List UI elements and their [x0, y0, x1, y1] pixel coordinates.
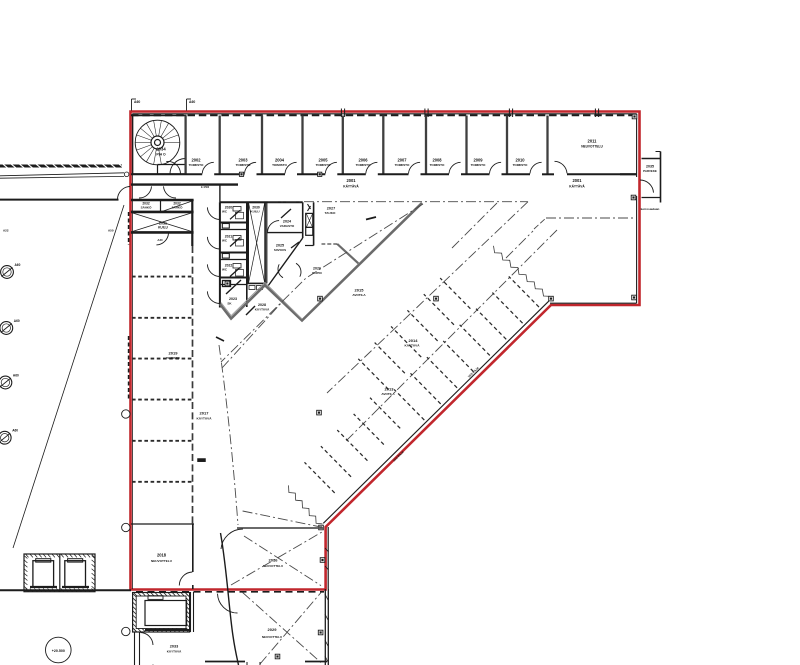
- svg-text:2007: 2007: [397, 157, 407, 162]
- svg-text:2015: 2015: [355, 288, 365, 293]
- svg-text:KÄYTÄVÄ: KÄYTÄVÄ: [569, 185, 585, 189]
- svg-text:2014: 2014: [409, 338, 419, 343]
- svg-text:WC: WC: [222, 238, 228, 242]
- svg-text:TOIMISTO: TOIMISTO: [430, 163, 445, 167]
- svg-text:TOIMISTO: TOIMISTO: [395, 163, 410, 167]
- svg-text:2008: 2008: [432, 157, 442, 162]
- svg-text:2006: 2006: [358, 157, 368, 162]
- svg-text:2011: 2011: [588, 139, 598, 144]
- svg-text:2005: 2005: [318, 157, 328, 162]
- svg-text:TOIMISTO: TOIMISTO: [316, 163, 331, 167]
- svg-text:2009: 2009: [473, 157, 483, 162]
- svg-text:PIH O: PIH O: [156, 153, 166, 157]
- svg-text:KÄYTÄVÄ: KÄYTÄVÄ: [255, 307, 270, 311]
- svg-text:2017: 2017: [200, 410, 210, 415]
- svg-text:KÄYTÄVÄ: KÄYTÄVÄ: [167, 649, 182, 653]
- svg-text:A60: A60: [14, 319, 20, 323]
- svg-text:VARASTO: VARASTO: [280, 224, 295, 228]
- svg-text:2002: 2002: [191, 157, 201, 162]
- svg-text:TAUKO: TAUKO: [325, 211, 336, 215]
- svg-text:2018: 2018: [157, 553, 167, 558]
- svg-text:NEUVOTTELU: NEUVOTTELU: [581, 145, 603, 149]
- svg-text:2024: 2024: [283, 219, 292, 223]
- svg-text:AVOTILA: AVOTILA: [381, 392, 395, 396]
- svg-text:2019: 2019: [169, 350, 179, 355]
- svg-text:KUILU: KUILU: [158, 226, 168, 230]
- svg-text:2003: 2003: [238, 157, 248, 162]
- svg-text:NEUVOTTELU: NEUVOTTELU: [151, 559, 173, 563]
- svg-text:2010: 2010: [515, 157, 525, 162]
- svg-text:2004: 2004: [275, 157, 285, 162]
- svg-text:2001: 2001: [572, 178, 582, 183]
- svg-text:KÄYTÄVÄ: KÄYTÄVÄ: [197, 417, 213, 421]
- svg-text:KÄYTÄVÄ: KÄYTÄVÄ: [343, 185, 359, 189]
- svg-text:A60: A60: [12, 429, 18, 433]
- svg-text:TOIMISTO: TOIMISTO: [356, 163, 371, 167]
- svg-text:A60: A60: [15, 263, 21, 267]
- svg-text:b=1500: b=1500: [201, 186, 210, 189]
- svg-text:kerrosaulaan: kerrosaulaan: [641, 207, 660, 211]
- svg-text:NEUVOTTELU: NEUVOTTELU: [262, 635, 282, 639]
- svg-text:+20.500: +20.500: [52, 649, 65, 653]
- svg-text:SÄHKÖ: SÄHKÖ: [141, 205, 153, 210]
- svg-text:A30: A30: [157, 238, 163, 242]
- svg-text:AVOTILA: AVOTILA: [352, 293, 366, 297]
- svg-text:A60: A60: [189, 100, 195, 104]
- svg-text:2026: 2026: [313, 267, 321, 271]
- svg-text:WC: WC: [222, 209, 228, 213]
- svg-text:2023: 2023: [229, 297, 237, 301]
- svg-text:A22: A22: [3, 229, 9, 233]
- svg-text:A60: A60: [13, 374, 19, 378]
- svg-text:2027: 2027: [327, 206, 335, 210]
- svg-text:WC: WC: [222, 267, 228, 271]
- svg-text:SÄHKÖ: SÄHKÖ: [172, 205, 184, 210]
- svg-text:2029: 2029: [268, 627, 278, 632]
- svg-text:A60: A60: [134, 100, 140, 104]
- svg-text:2033: 2033: [170, 645, 178, 649]
- svg-text:2013: 2013: [385, 387, 395, 392]
- svg-text:TOIMISTO: TOIMISTO: [471, 163, 486, 167]
- svg-text:TOIMISTO: TOIMISTO: [236, 163, 251, 167]
- svg-text:A50: A50: [108, 229, 114, 233]
- svg-text:2034: 2034: [156, 147, 166, 152]
- svg-text:PARVEKE: PARVEKE: [643, 169, 657, 173]
- svg-text:SIIVOUS: SIIVOUS: [274, 248, 286, 252]
- svg-text:KÄYTÄVÄ: KÄYTÄVÄ: [405, 344, 421, 348]
- svg-text:2035: 2035: [646, 165, 654, 169]
- svg-text:TOIMISTO: TOIMISTO: [272, 163, 287, 167]
- svg-text:TOIMISTO: TOIMISTO: [189, 163, 204, 167]
- svg-text:TOIMISTO: TOIMISTO: [166, 356, 181, 360]
- svg-text:KUILU: KUILU: [250, 209, 259, 213]
- svg-text:2028: 2028: [258, 303, 266, 307]
- svg-text:2025: 2025: [276, 243, 284, 247]
- svg-text:2001: 2001: [346, 178, 356, 183]
- svg-text:TOIMISTO: TOIMISTO: [513, 163, 528, 167]
